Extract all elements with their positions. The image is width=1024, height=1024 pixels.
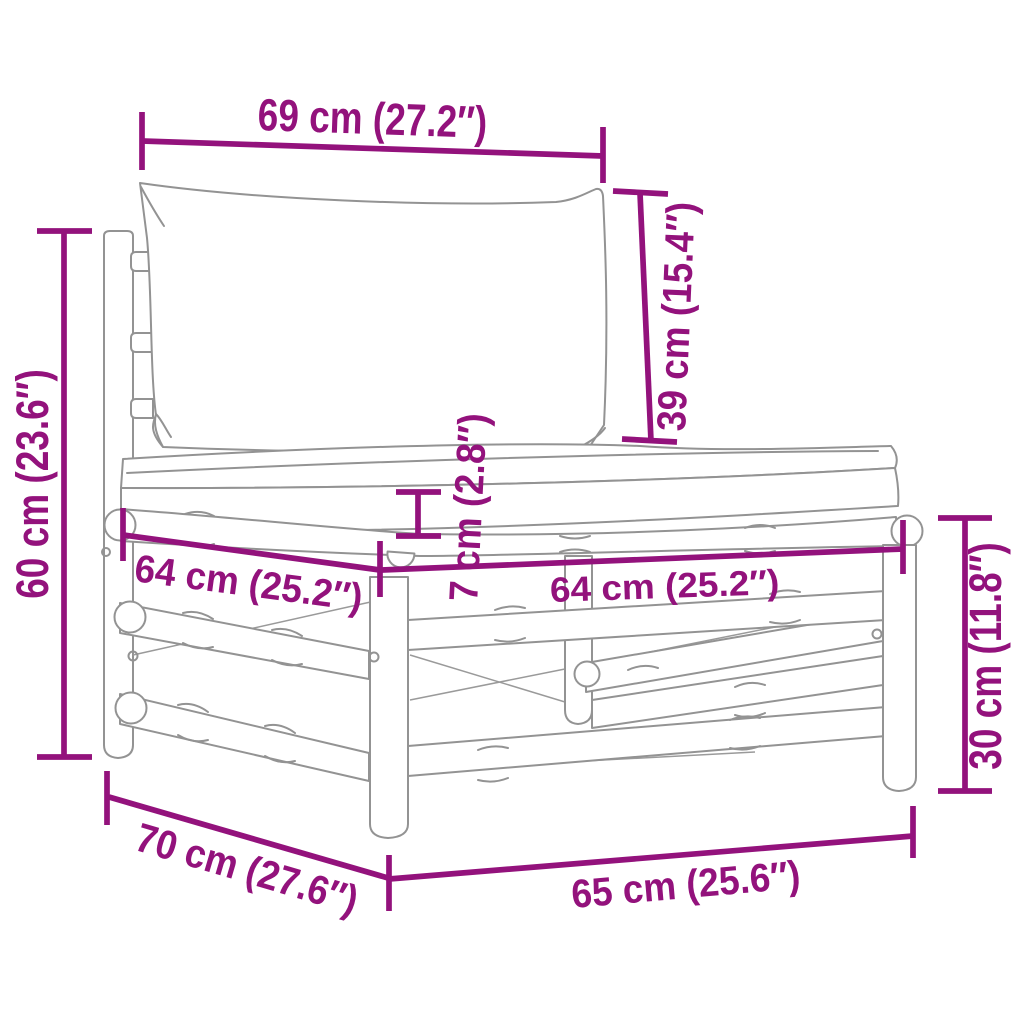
svg-text:30 cm (11.8″): 30 cm (11.8″) [961, 542, 1011, 770]
svg-text:64 cm (25.2″): 64 cm (25.2″) [549, 562, 780, 610]
svg-text:69 cm (27.2″): 69 cm (27.2″) [257, 90, 488, 148]
svg-text:60 cm (23.6″): 60 cm (23.6″) [8, 369, 58, 599]
